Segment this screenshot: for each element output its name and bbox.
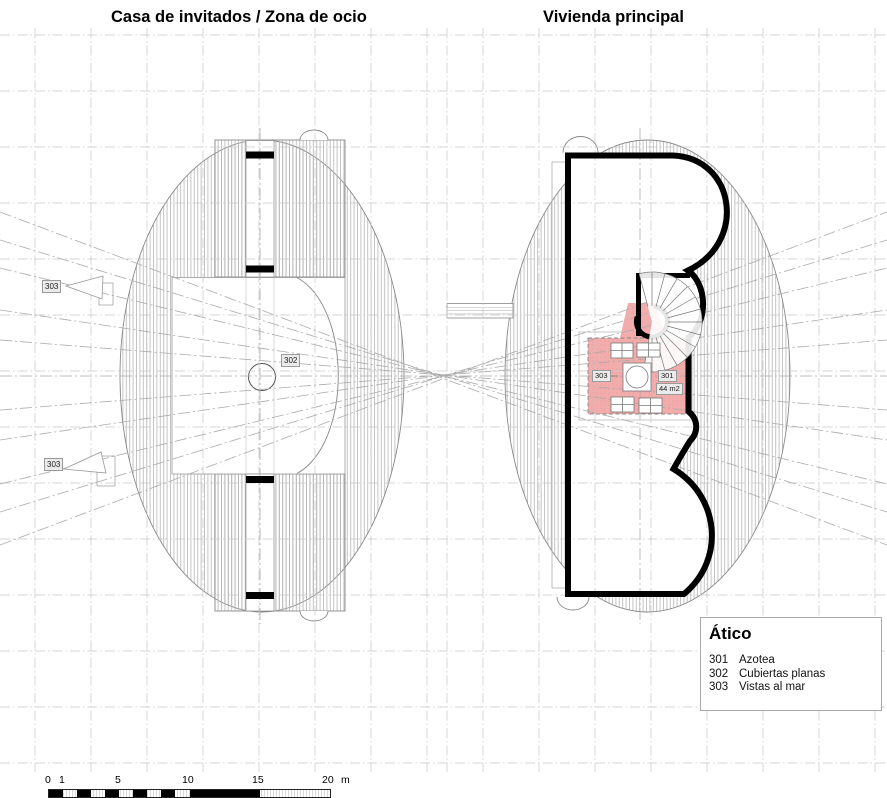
lounger-bottom-left [611, 397, 634, 412]
view-cones [64, 276, 106, 473]
lounger-bottom-right [639, 398, 662, 413]
label-view-upper: 303 [42, 280, 61, 293]
scale-tick-1: 1 [59, 774, 65, 786]
legend-label: Cubiertas planas [739, 668, 825, 680]
legend-item-302: 302Cubiertas planas [709, 668, 881, 682]
scale-unit: m [341, 774, 350, 786]
scale-bar-graphic [48, 789, 331, 798]
legend-box: Ático 301Azotea 302Cubiertas planas 303V… [700, 617, 882, 711]
view-cone-upper [66, 276, 103, 299]
legend-item-303: 303Vistas al mar [709, 681, 881, 695]
label-terrace: 301 [658, 370, 677, 382]
view-cone-lower [64, 452, 106, 473]
scale-tick-20: 20 [322, 774, 334, 786]
title-guest-house: Casa de invitados / Zona de ocio [111, 8, 367, 27]
scale-tick-10: 10 [182, 774, 194, 786]
scale-tick-15: 15 [252, 774, 264, 786]
legend-label: Azotea [739, 654, 775, 666]
scale-tick-5: 5 [115, 774, 121, 786]
label-flat-roofs: 302 [281, 354, 300, 367]
legend-item-301: 301Azotea [709, 654, 881, 668]
label-terrace-view: 303 [592, 370, 611, 382]
lounger-top-right [637, 343, 660, 357]
legend-code: 301 [709, 654, 739, 668]
legend-code: 302 [709, 668, 739, 682]
label-terrace-area: 44 m2 [656, 383, 683, 395]
table-center [623, 363, 651, 391]
skylight-circle [249, 364, 276, 391]
main-house-roof [447, 137, 790, 613]
guest-house-roof [97, 130, 404, 621]
scale-bar: 0 1 5 10 15 20 m [48, 774, 368, 798]
legend-label: Vistas al mar [739, 681, 805, 693]
scale-tick-0: 0 [45, 774, 51, 786]
stair-bump-bottom [300, 611, 328, 621]
dome-bump-top [563, 137, 598, 153]
bridge-walkway [447, 304, 513, 319]
stair-bump-top [300, 130, 328, 140]
legend-code: 303 [709, 681, 739, 695]
legend-title: Ático [709, 624, 881, 644]
label-view-lower: 303 [44, 458, 63, 471]
title-main-house: Vivienda principal [543, 8, 684, 27]
floor-plan-canvas: Casa de invitados / Zona de ocio Viviend… [0, 0, 887, 798]
dome-bump-bottom [557, 597, 589, 610]
lounger-top-left [611, 343, 633, 358]
